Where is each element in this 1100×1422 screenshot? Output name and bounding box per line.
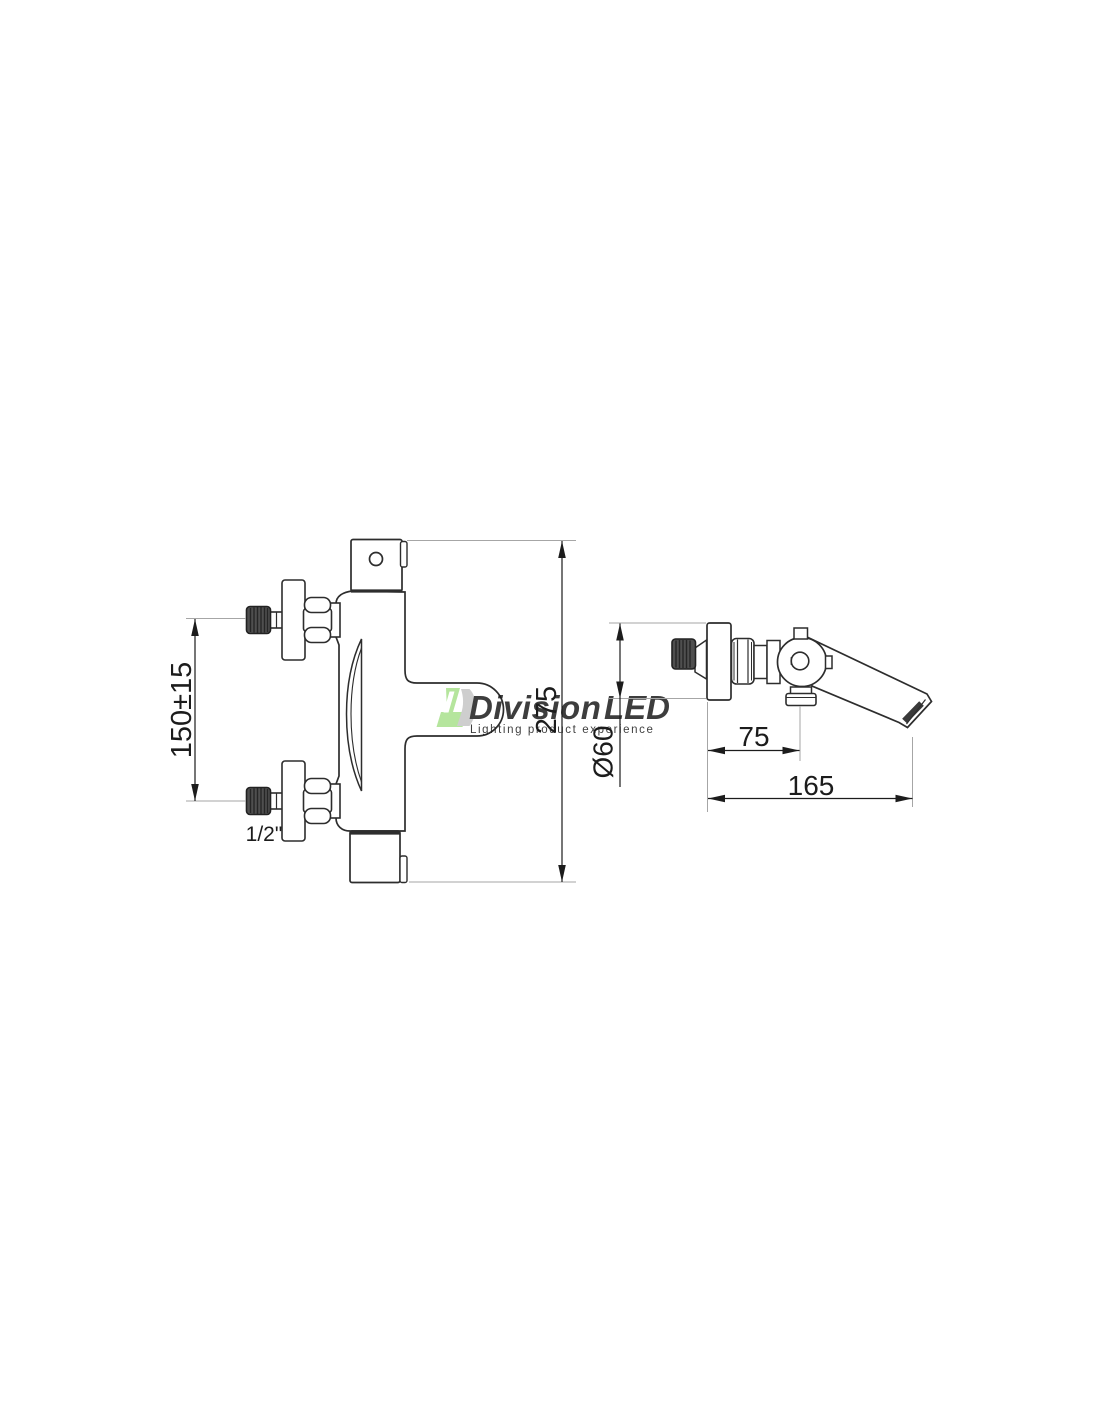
side-view — [672, 623, 932, 728]
watermark-brand-green: LED — [604, 689, 670, 726]
side-knurled-nut — [732, 639, 755, 685]
arrow-165-right — [896, 795, 913, 803]
wall-bracket-bottom-notch — [400, 856, 407, 883]
dimensions: 150±15 275 1/2" Ø60 75 165 — [166, 541, 912, 883]
dim-diverter-offset-label: 75 — [738, 721, 769, 752]
arrow-150-up — [191, 619, 199, 636]
dim-spout-reach-label: 165 — [788, 770, 835, 801]
mounting-hole — [370, 553, 383, 566]
dim-plate-diameter-label: Ø60 — [587, 726, 618, 779]
technical-drawing: Division LED Lighting product experience — [0, 0, 1100, 1422]
arrow-275-down — [558, 865, 566, 882]
arrow-75-right — [783, 747, 800, 755]
side-inlet-funnel — [695, 640, 707, 679]
side-top-tab — [794, 628, 808, 639]
wall-bracket-bottom — [350, 831, 407, 883]
arrow-165-left — [708, 795, 725, 803]
arrow-75-left — [708, 747, 725, 755]
side-inlet-knob — [672, 639, 696, 669]
technical-drawing-page: Division LED Lighting product experience — [0, 0, 1100, 1422]
inlet-assembly-top — [247, 580, 341, 660]
arrow-275-up — [558, 541, 566, 558]
dim-overall-height-label: 275 — [531, 686, 563, 734]
side-right-tab — [826, 656, 833, 669]
dim-inlet-spacing-label: 150±15 — [166, 662, 198, 759]
side-escutcheon-plate — [707, 623, 731, 700]
arrow-150-down — [191, 784, 199, 801]
side-handle-hole — [791, 652, 809, 670]
diverter — [786, 687, 816, 706]
connection-size-label: 1/2" — [246, 823, 283, 846]
wall-bracket-top — [351, 540, 407, 592]
side-adapter — [754, 646, 767, 679]
wall-bracket-top-notch — [401, 542, 408, 568]
arrow-60-up — [616, 624, 624, 641]
